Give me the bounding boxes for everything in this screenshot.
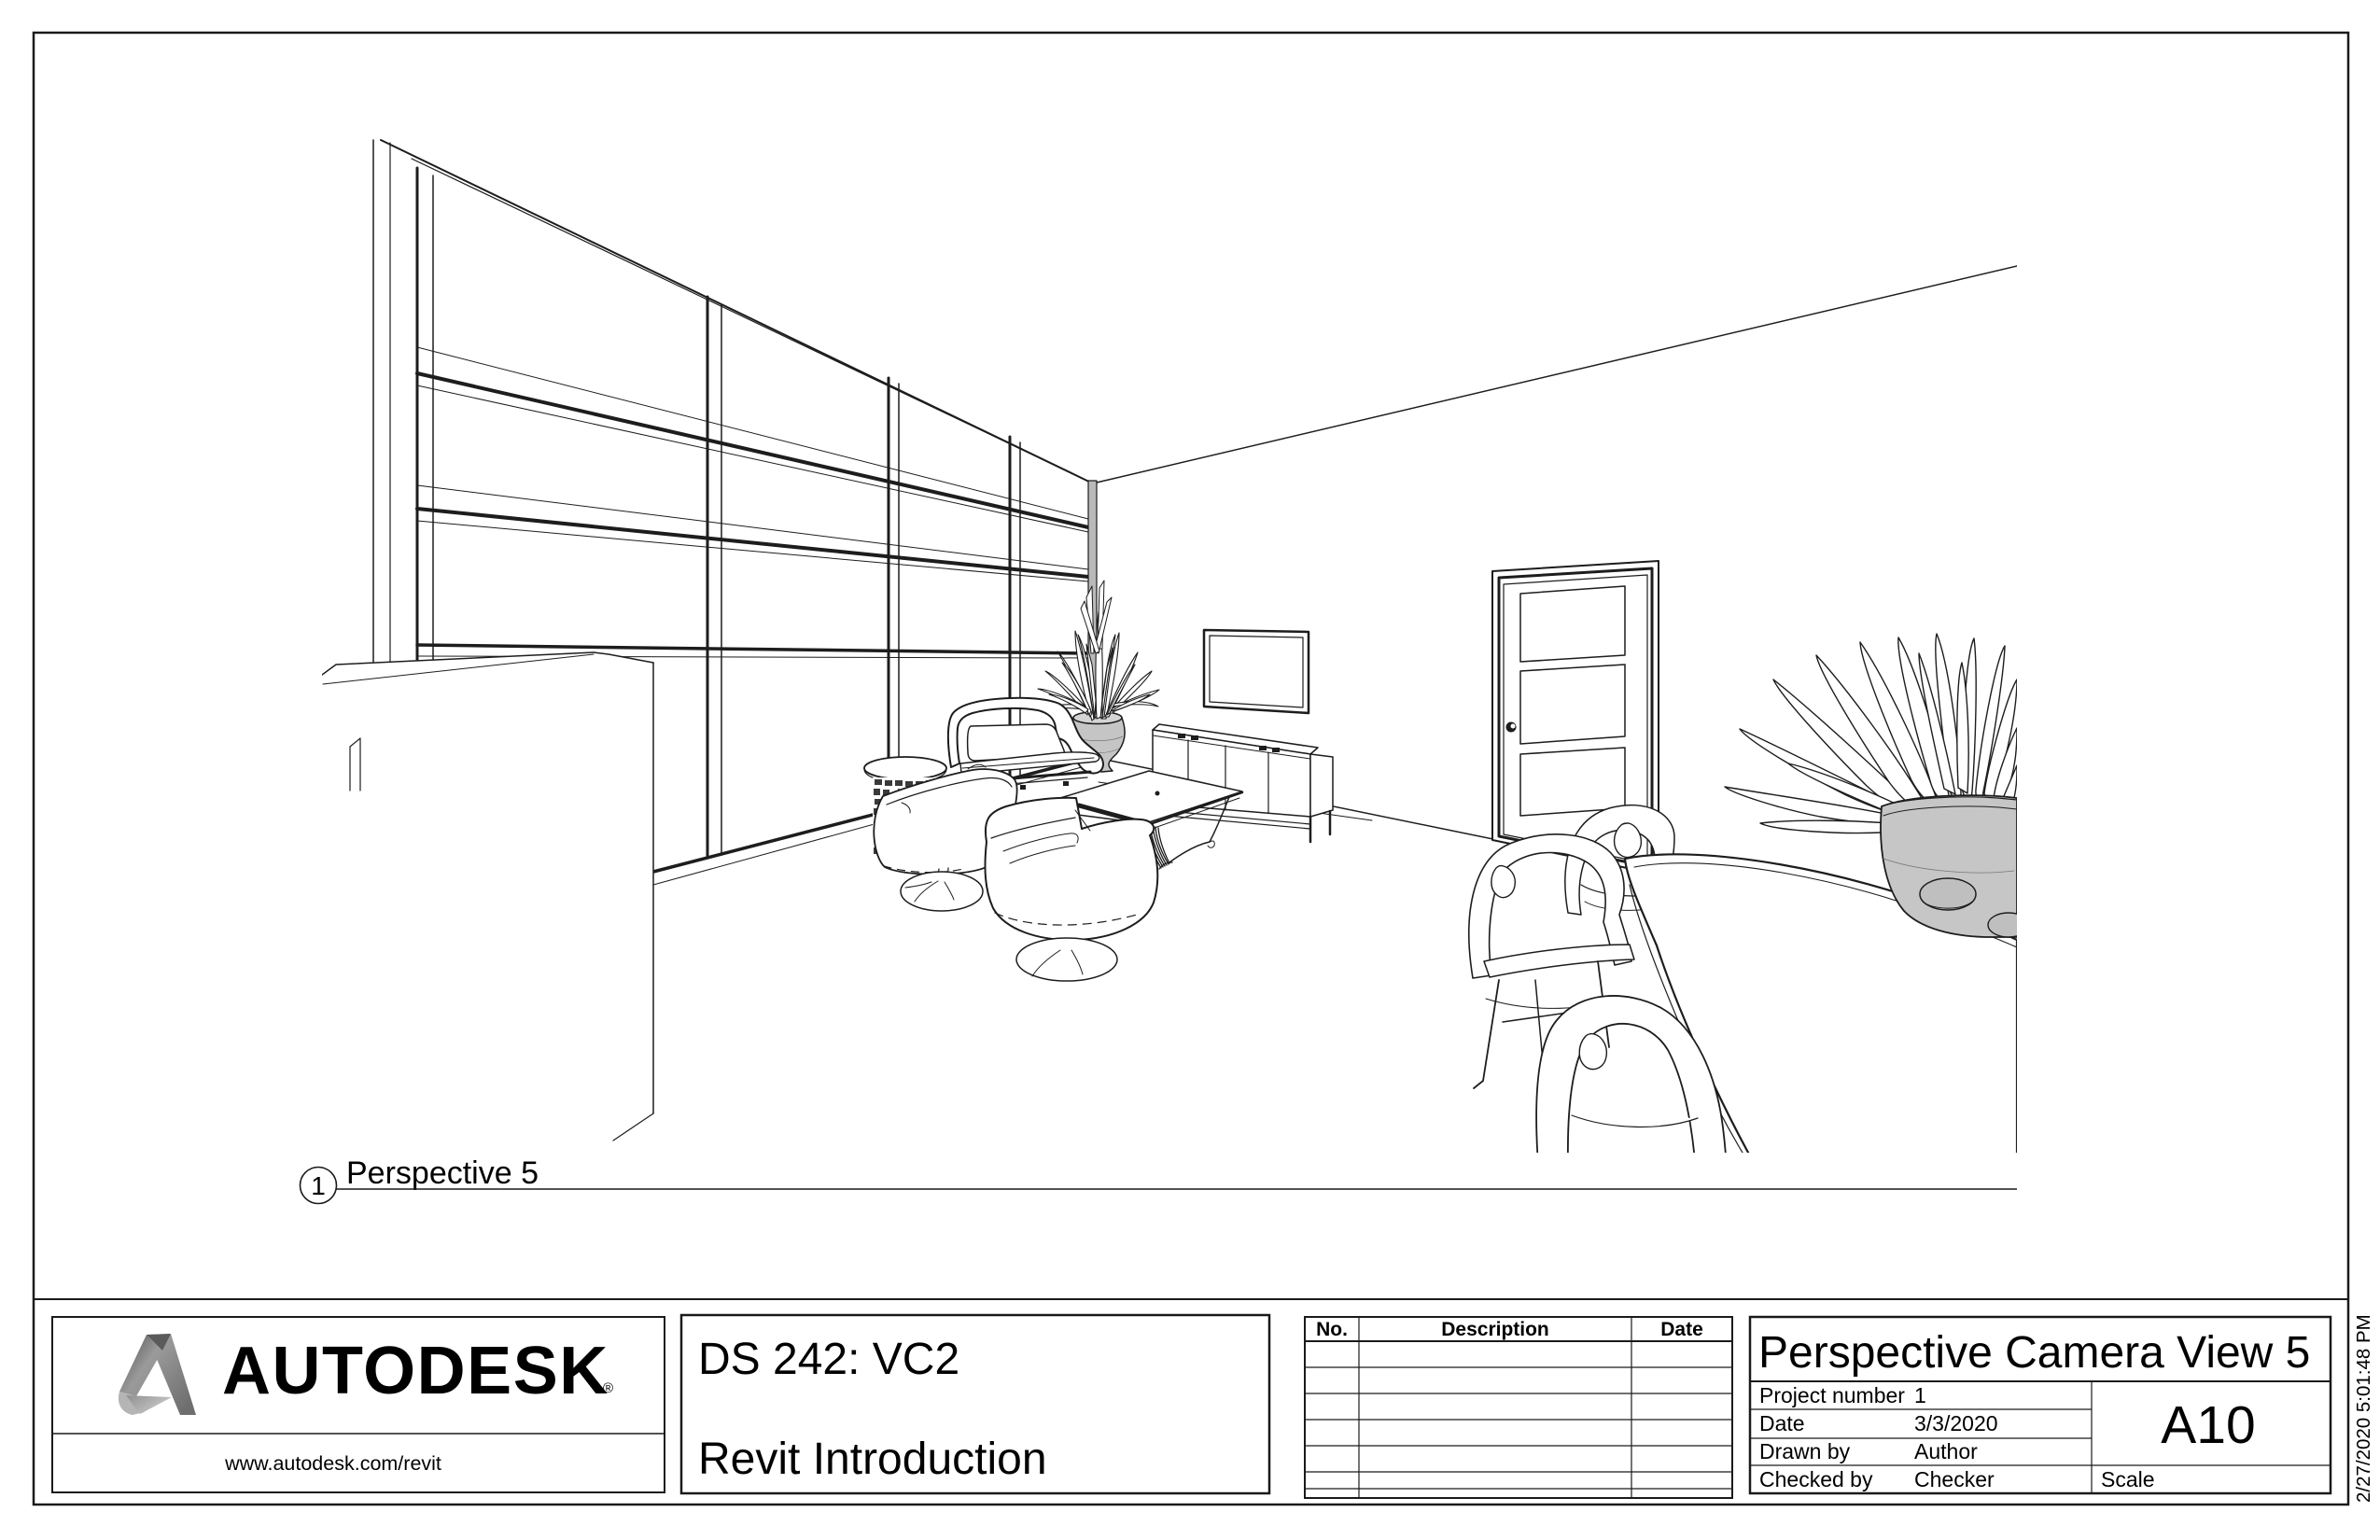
svg-text:Scale: Scale (2101, 1467, 2155, 1491)
svg-text:Perspective 5: Perspective 5 (346, 1155, 539, 1191)
svg-text:1: 1 (1914, 1383, 1926, 1407)
svg-text:Date: Date (1759, 1411, 1805, 1435)
svg-text:AUTODESK: AUTODESK (222, 1334, 609, 1408)
svg-text:Perspective Camera View 5: Perspective Camera View 5 (1758, 1328, 2310, 1378)
svg-text:2/27/2020 5:01:48 PM: 2/27/2020 5:01:48 PM (2353, 1314, 2374, 1503)
svg-text:Project number: Project number (1759, 1383, 1905, 1407)
svg-text:®: ® (603, 1380, 613, 1396)
svg-text:Drawn by: Drawn by (1759, 1439, 1851, 1463)
svg-text:Date: Date (1660, 1319, 1703, 1340)
svg-text:Checked by: Checked by (1759, 1467, 1873, 1491)
svg-text:3/3/2020: 3/3/2020 (1914, 1411, 1998, 1435)
svg-text:1: 1 (311, 1171, 326, 1200)
svg-text:Checker: Checker (1914, 1467, 1995, 1491)
svg-text:www.autodesk.com/revit: www.autodesk.com/revit (224, 1452, 441, 1475)
svg-text:Author: Author (1914, 1439, 1978, 1463)
svg-text:No.: No. (1316, 1319, 1348, 1340)
svg-text:A10: A10 (2161, 1395, 2255, 1455)
svg-text:Description: Description (1441, 1319, 1549, 1340)
svg-text:Revit Introduction: Revit Introduction (698, 1435, 1047, 1484)
svg-text:DS 242: VC2: DS 242: VC2 (698, 1335, 959, 1384)
